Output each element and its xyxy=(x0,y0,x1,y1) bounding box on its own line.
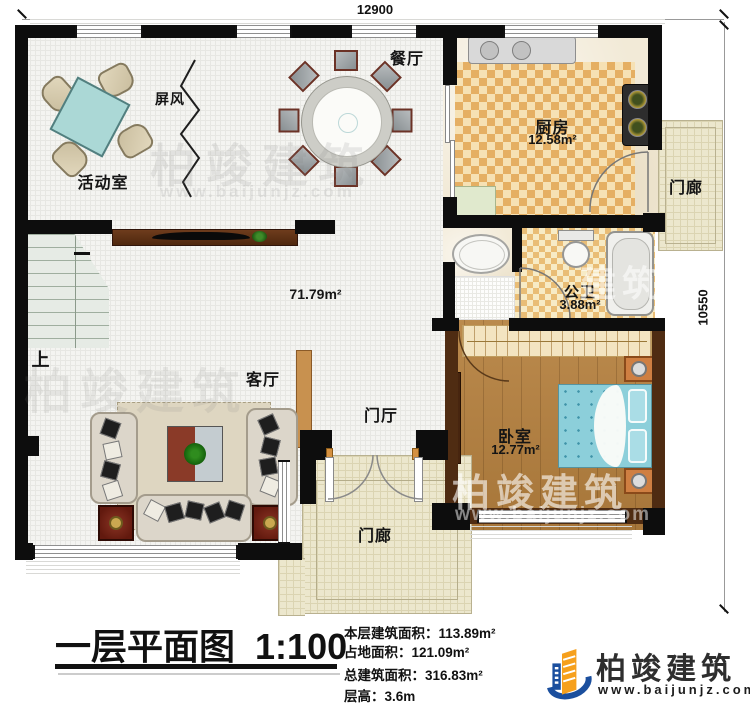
wall xyxy=(300,430,316,504)
floor-plan-canvas: 12900 10550 xyxy=(0,0,750,718)
wall xyxy=(15,25,28,560)
sofa-pillow xyxy=(184,500,204,520)
side-table-medallion xyxy=(263,516,277,530)
dimension-line-right xyxy=(724,22,725,612)
window xyxy=(477,510,627,523)
plant-decor xyxy=(252,231,267,242)
dining-chair xyxy=(279,109,300,133)
wall xyxy=(648,25,662,150)
wall xyxy=(418,25,503,38)
company-logo: 柏竣建筑 www.baijunjz.com xyxy=(540,638,745,708)
stat-value: 316.83m² xyxy=(425,668,483,683)
window xyxy=(75,25,143,38)
kitchen-sink-basin xyxy=(480,41,499,60)
exterior-steps xyxy=(470,526,632,539)
stairs-up-label: 上 xyxy=(28,346,54,372)
exterior-steps xyxy=(26,561,240,576)
bath-area-label: 3.88m² xyxy=(545,297,615,312)
wall xyxy=(643,508,665,535)
entry-door-leaf xyxy=(325,457,334,502)
wall xyxy=(443,25,457,85)
stairs-direction-arrow xyxy=(74,252,90,255)
bath-mat xyxy=(447,276,515,320)
sofa-pillow xyxy=(259,457,279,477)
vanity-sink-inner xyxy=(459,240,505,270)
plan-title-scale: 1:100 xyxy=(255,626,347,667)
wall xyxy=(432,318,459,331)
bed-pillow xyxy=(628,389,647,423)
nightstand-lamp xyxy=(631,361,647,377)
bathtub-inner xyxy=(612,238,650,310)
wall-pilaster xyxy=(15,436,39,456)
tv xyxy=(152,232,250,240)
wall xyxy=(443,215,665,228)
wall xyxy=(143,25,235,38)
sliding-door xyxy=(445,85,450,143)
logo-url: www.baijunjz.com xyxy=(598,682,750,697)
dimension-tick xyxy=(17,9,27,19)
stats-block: 本层建筑面积：113.89m² 占地面积：121.09m² 总建筑面积：316.… xyxy=(344,622,544,712)
side-table-medallion xyxy=(109,516,123,530)
window xyxy=(33,545,238,559)
foyer-label: 门厅 xyxy=(356,402,406,426)
wall xyxy=(512,228,522,272)
entry-door-leaf xyxy=(414,457,423,502)
wardrobe-rod xyxy=(467,341,647,342)
activity-room-label: 活动室 xyxy=(68,169,138,193)
wall xyxy=(416,430,448,460)
dining-table-center xyxy=(338,113,358,133)
title-underline xyxy=(55,664,337,669)
dining-chair xyxy=(334,50,358,71)
stove-burner xyxy=(628,90,647,109)
window xyxy=(235,25,292,38)
screen-label: 屏风 xyxy=(150,89,190,109)
stat-value: 3.6m xyxy=(385,689,416,704)
stove-burner xyxy=(628,118,647,137)
plan-title-text: 一层平面图 xyxy=(55,626,235,667)
wall xyxy=(443,262,455,318)
stat-label: 层高： xyxy=(344,689,385,704)
dining-chair xyxy=(334,166,358,187)
stat-value: 113.89m² xyxy=(439,626,496,641)
plan-title: 一层平面图 1:100 xyxy=(55,618,345,670)
wall xyxy=(238,543,302,560)
stat-label: 本层建筑面积： xyxy=(344,626,439,641)
wall xyxy=(445,331,458,513)
kitchen-sink-basin xyxy=(512,41,531,60)
nightstand-lamp xyxy=(631,473,647,489)
wall xyxy=(432,503,470,530)
dimension-tick xyxy=(719,9,729,19)
coffee-table-plant xyxy=(184,443,206,465)
dining-chair xyxy=(392,109,413,133)
wall xyxy=(15,543,33,560)
bed-pillow xyxy=(628,429,647,463)
dining-room-label: 餐厅 xyxy=(382,45,432,69)
porch-bottom-label: 门廊 xyxy=(350,522,400,546)
window xyxy=(278,460,290,544)
window xyxy=(503,25,600,38)
logo-building-icon xyxy=(544,644,592,702)
porch-bottom-extension xyxy=(278,558,305,616)
hall-area-label: 71.79m² xyxy=(278,286,353,302)
toilet-bowl xyxy=(562,241,590,268)
living-room-label: 客厅 xyxy=(238,366,288,390)
porch-right-label: 门廊 xyxy=(662,174,710,198)
stat-label: 总建筑面积： xyxy=(344,668,425,683)
toilet-tank xyxy=(558,230,594,241)
stat-label: 占地面积： xyxy=(344,645,412,660)
title-underline-shadow xyxy=(58,673,340,675)
bedroom-area-label: 12.77m² xyxy=(478,442,553,457)
sliding-door xyxy=(450,140,455,198)
wall xyxy=(509,318,665,331)
wall xyxy=(292,25,350,38)
dimension-label-top: 12900 xyxy=(330,2,420,17)
sofa-pillow xyxy=(102,440,122,460)
window xyxy=(350,25,418,38)
wall xyxy=(295,220,335,234)
wall xyxy=(15,220,112,234)
stat-value: 121.09m² xyxy=(412,645,470,660)
wall xyxy=(652,331,665,513)
dimension-label-right: 10550 xyxy=(696,273,711,343)
kitchen-area-label: 12.58m² xyxy=(515,132,590,147)
